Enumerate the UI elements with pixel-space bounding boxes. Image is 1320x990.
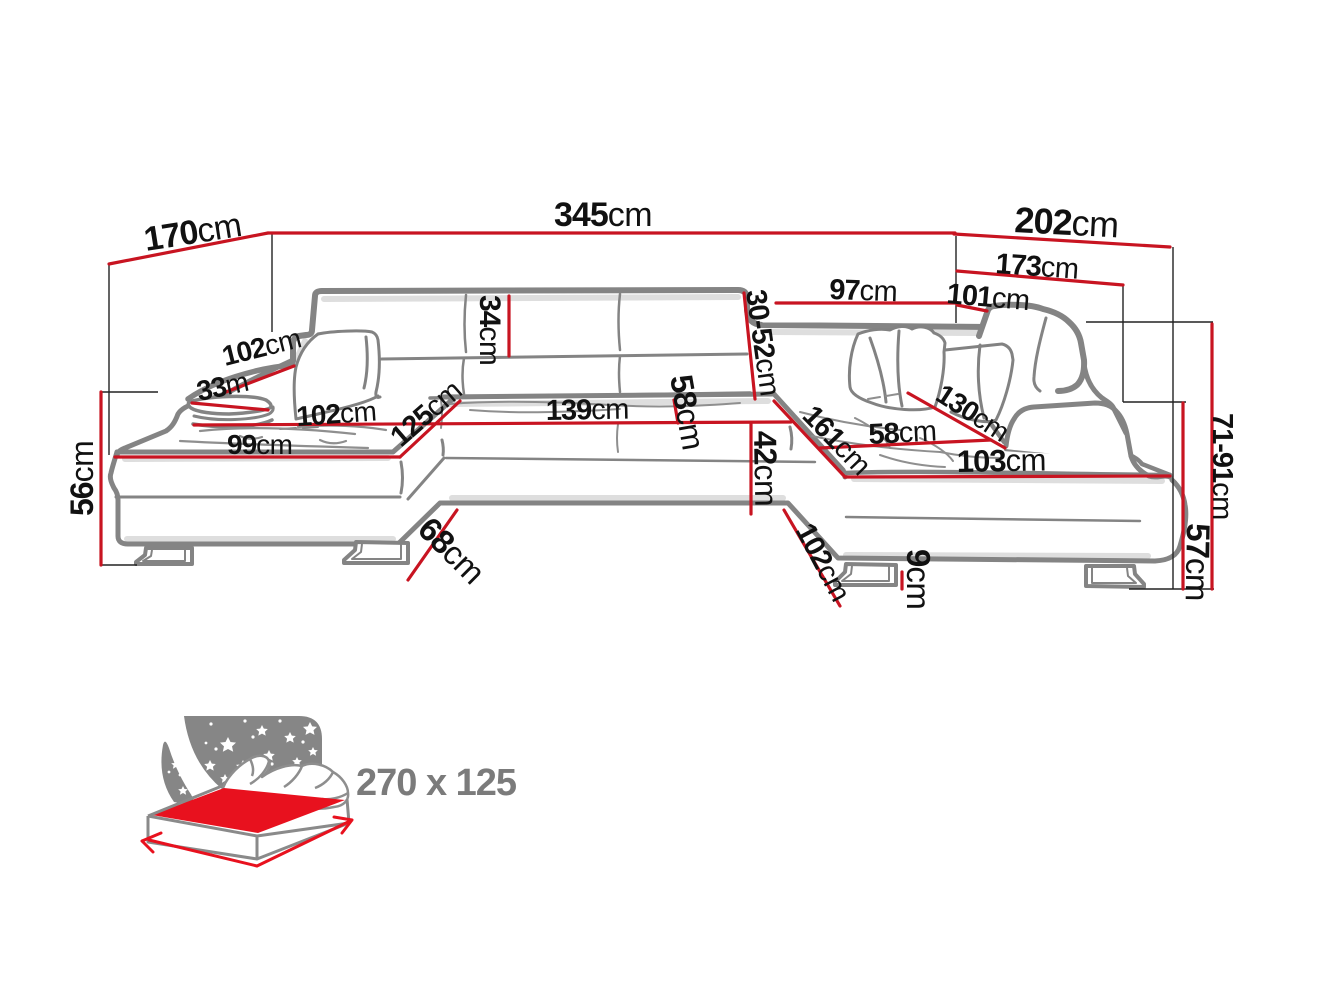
svg-text:9cm: 9cm	[900, 549, 937, 609]
svg-text:345cm: 345cm	[554, 196, 652, 234]
svg-text:103cm: 103cm	[957, 442, 1047, 479]
svg-text:173cm: 173cm	[995, 248, 1080, 286]
svg-text:57cm: 57cm	[1179, 523, 1217, 601]
svg-text:56cm: 56cm	[64, 441, 100, 516]
svg-text:102cm: 102cm	[295, 395, 377, 432]
svg-text:139cm: 139cm	[546, 394, 630, 427]
svg-text:270 x 125: 270 x 125	[356, 762, 517, 804]
svg-text:34cm: 34cm	[473, 295, 506, 365]
svg-text:202cm: 202cm	[1014, 199, 1120, 245]
svg-text:71-91cm: 71-91cm	[1206, 413, 1238, 520]
svg-text:58cm: 58cm	[868, 415, 938, 451]
svg-text:97cm: 97cm	[829, 274, 898, 308]
svg-text:99cm: 99cm	[227, 429, 292, 460]
svg-text:42cm: 42cm	[747, 430, 784, 506]
